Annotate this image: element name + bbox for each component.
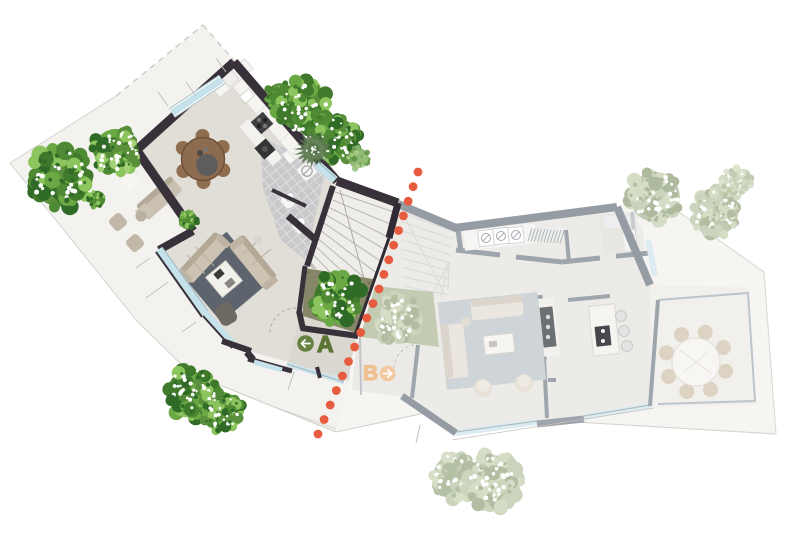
svg-text:A: A — [317, 331, 334, 357]
svg-text:B: B — [363, 362, 378, 385]
